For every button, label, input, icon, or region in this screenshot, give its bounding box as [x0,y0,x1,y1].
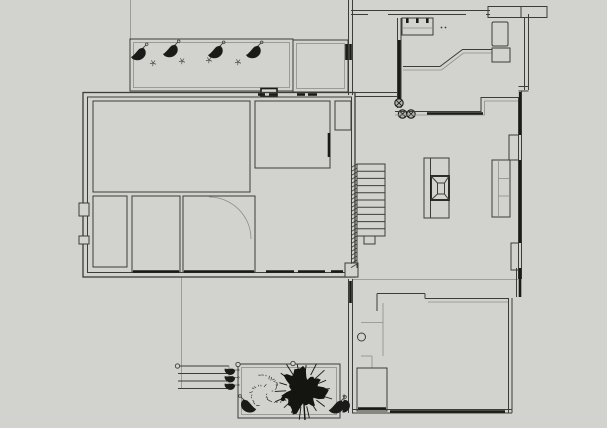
wall-notch-2 [79,236,89,244]
floor-plan-stage [0,0,607,428]
wall-pilaster-upper [509,135,519,160]
sink-tap-mark [416,19,419,24]
floor-plan-canvas [0,0,607,428]
faucet-dot [441,27,443,29]
post-circle [291,361,295,365]
sink-tap-mark [406,19,409,24]
wall-notch-1 [79,203,89,216]
post-circle [236,362,240,366]
post-circle [175,364,179,368]
faucet-dot [445,27,447,29]
sink-tap-mark [426,19,429,24]
tree-branch [275,391,286,392]
wall-pilaster-lower [511,243,519,270]
corner-pier [345,263,358,277]
